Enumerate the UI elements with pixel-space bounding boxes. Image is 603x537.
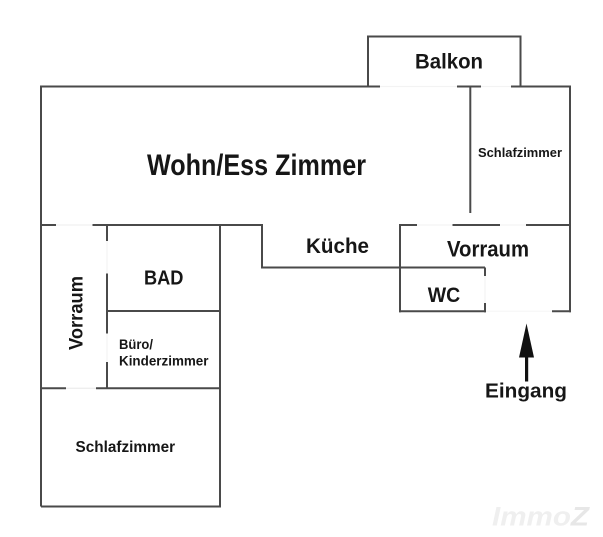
svg-text:WC: WC — [428, 284, 461, 307]
svg-text:Büro/: Büro/ — [119, 336, 153, 352]
svg-text:Wohn/Ess Zimmer: Wohn/Ess Zimmer — [147, 149, 366, 182]
svg-text:Schlafzimmer: Schlafzimmer — [76, 439, 176, 456]
svg-text:Vorraum: Vorraum — [447, 237, 529, 262]
svg-text:BAD: BAD — [144, 268, 184, 290]
svg-text:ImmoZ: ImmoZ — [492, 502, 591, 532]
svg-text:Schlafzimmer: Schlafzimmer — [478, 145, 562, 160]
svg-text:Vorraum: Vorraum — [67, 276, 88, 350]
svg-text:Kinderzimmer: Kinderzimmer — [119, 353, 209, 369]
svg-text:Balkon: Balkon — [415, 51, 483, 74]
svg-text:Küche: Küche — [306, 235, 369, 258]
svg-text:Eingang: Eingang — [485, 380, 567, 403]
